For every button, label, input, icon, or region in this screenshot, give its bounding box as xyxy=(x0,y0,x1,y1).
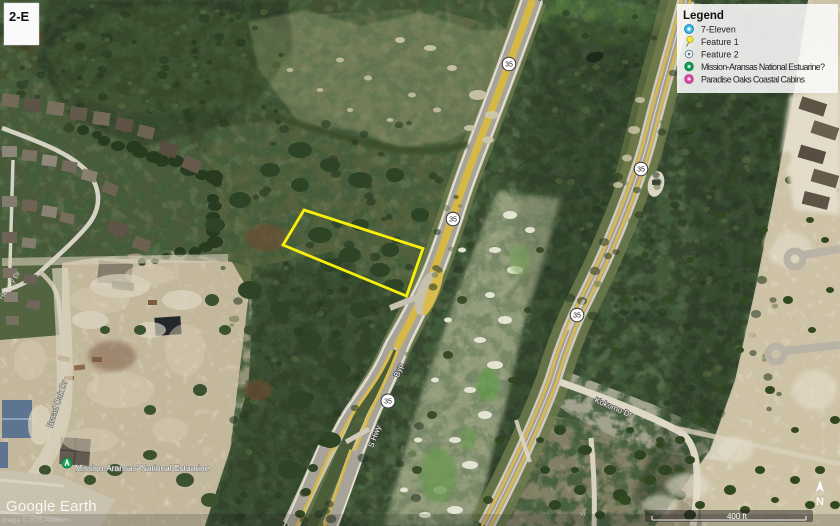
svg-text:7-Eleven: 7-Eleven xyxy=(701,25,736,35)
svg-text:N: N xyxy=(816,496,824,508)
svg-text:Feature 1: Feature 1 xyxy=(701,37,739,47)
svg-text:Image © 2025 Airbus: Image © 2025 Airbus xyxy=(2,516,64,524)
svg-text:2-E: 2-E xyxy=(9,9,30,24)
svg-text:Mission-Aransas National Estua: Mission-Aransas National Estuarine? xyxy=(701,62,825,72)
svg-text:35: 35 xyxy=(637,167,645,174)
svg-text:Legend: Legend xyxy=(683,10,724,22)
svg-text:35: 35 xyxy=(505,62,513,69)
svg-text:Google Earth: Google Earth xyxy=(6,498,97,515)
svg-text:Mission-Aransas' National Estu: Mission-Aransas' National Estuarine xyxy=(75,463,210,473)
svg-text:35: 35 xyxy=(449,217,457,224)
svg-text:Sc: Sc xyxy=(580,507,588,516)
svg-text:35: 35 xyxy=(573,313,581,320)
svg-text:35: 35 xyxy=(384,399,392,406)
svg-text:Paradise Oaks Coastal Cabins: Paradise Oaks Coastal Cabins xyxy=(701,75,806,85)
svg-text:Feature 2: Feature 2 xyxy=(701,50,739,60)
